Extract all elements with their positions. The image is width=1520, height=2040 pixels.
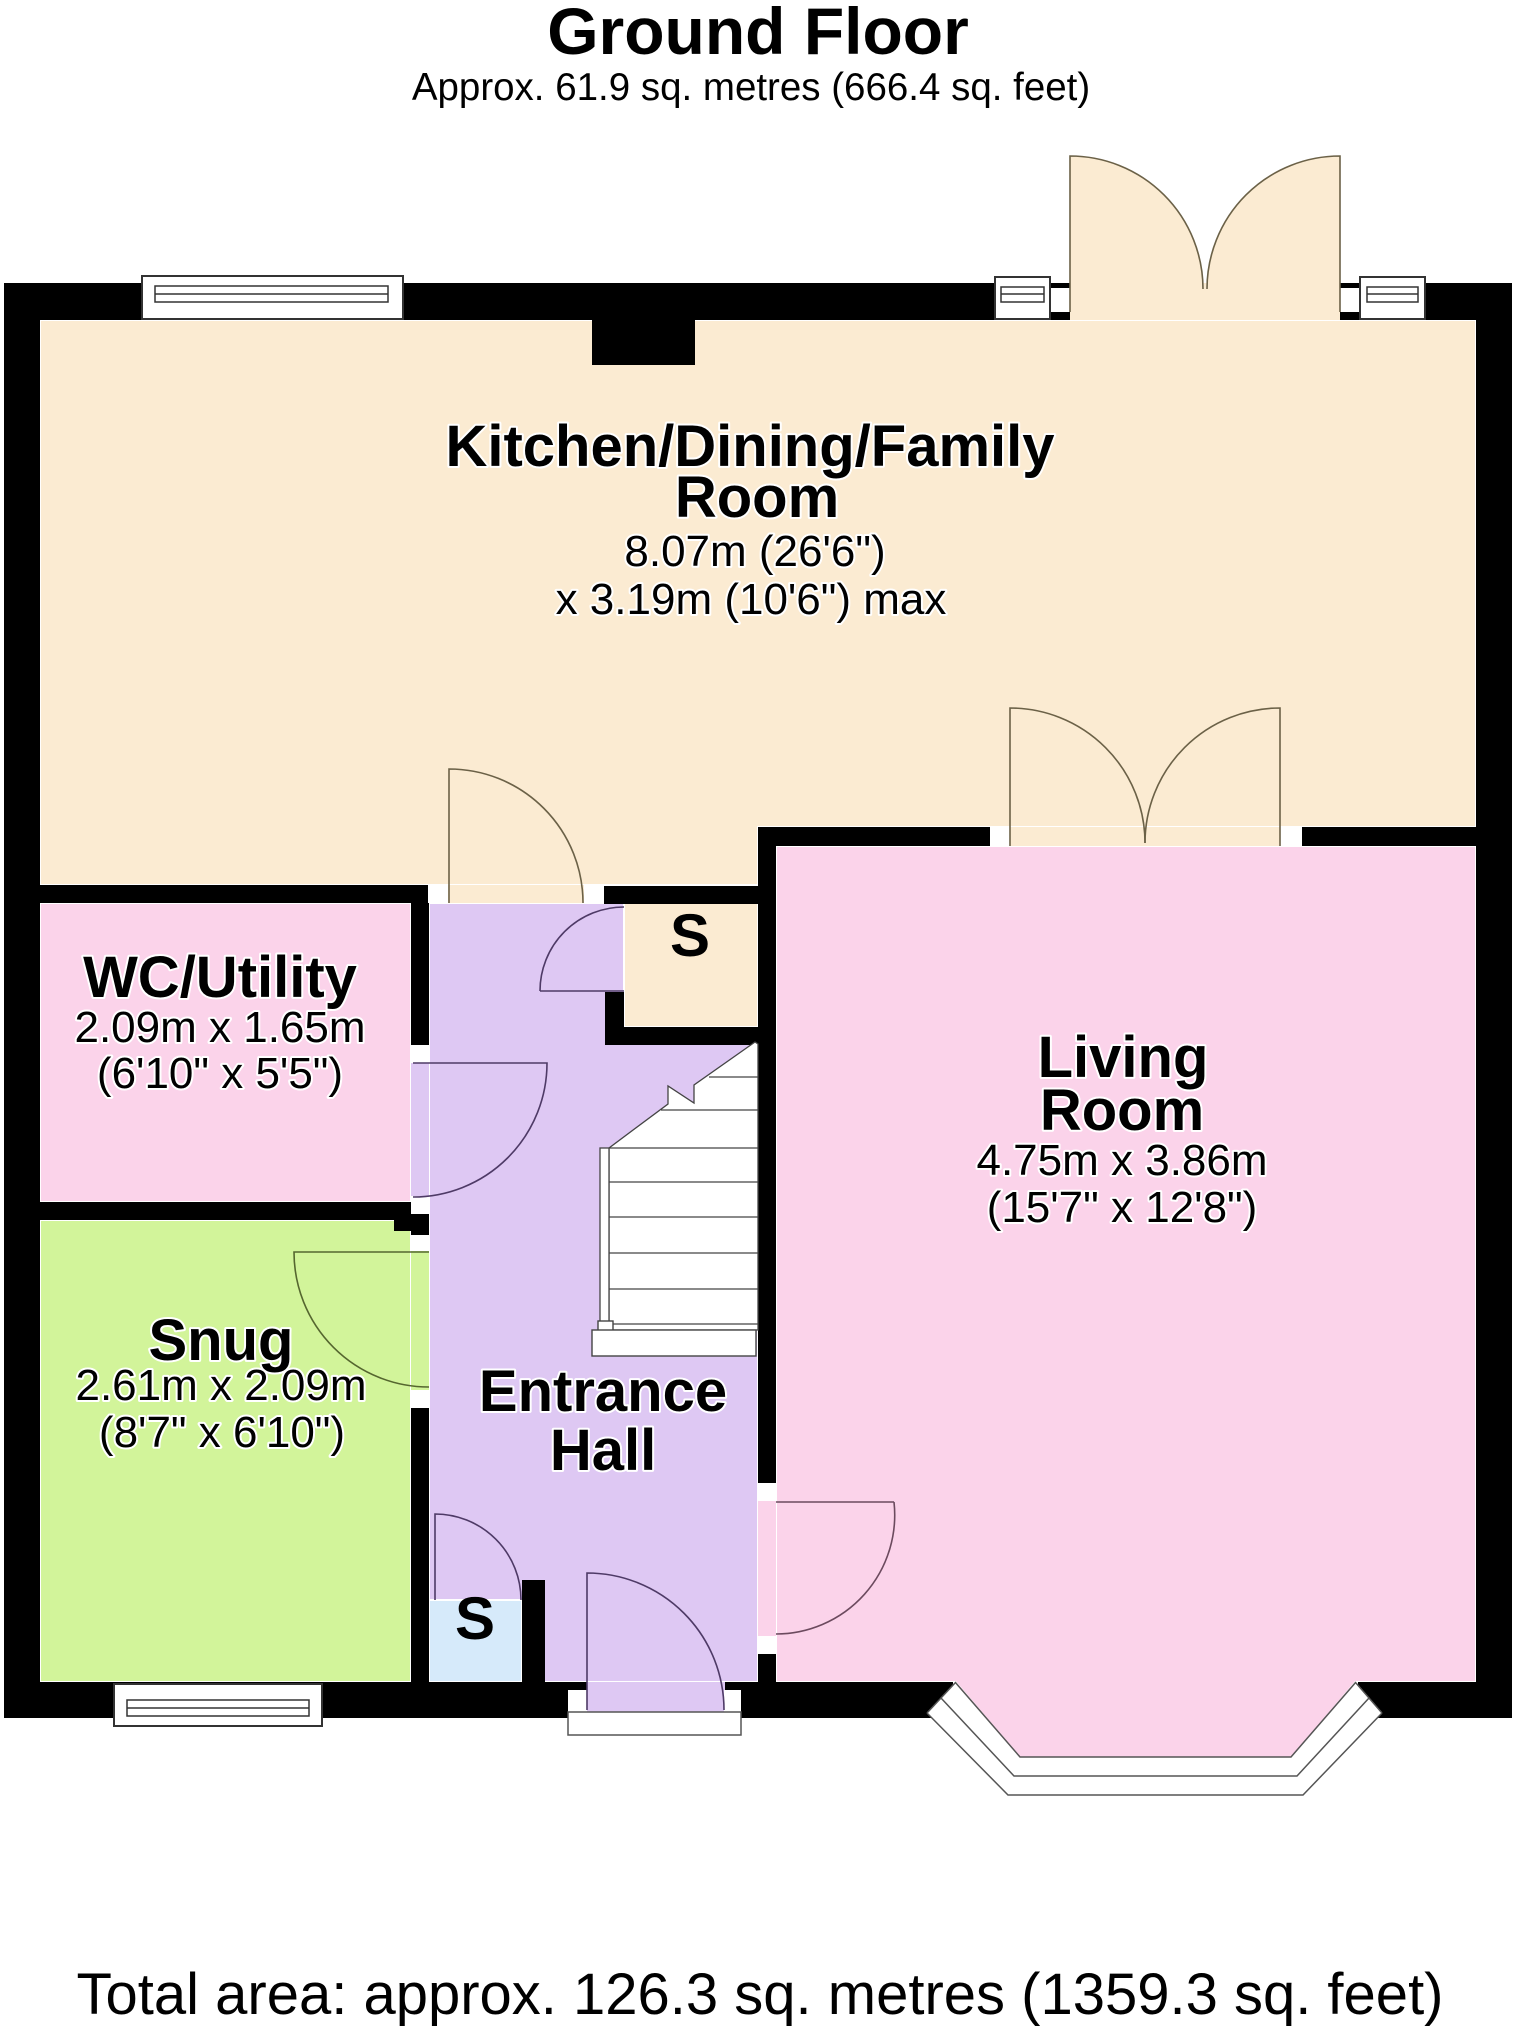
svg-text:Room: Room <box>675 465 839 530</box>
svg-text:Room: Room <box>1040 1078 1204 1143</box>
svg-text:Entrance: Entrance <box>479 1359 727 1424</box>
svg-text:S: S <box>670 902 710 969</box>
svg-text:WC/Utility: WC/Utility <box>83 945 357 1010</box>
svg-text:Ground Floor: Ground Floor <box>547 0 969 68</box>
svg-text:Approx. 61.9 sq. metres (666.4: Approx. 61.9 sq. metres (666.4 sq. feet) <box>412 66 1090 109</box>
svg-text:Hall: Hall <box>550 1418 656 1483</box>
svg-text:4.75m x 3.86m: 4.75m x 3.86m <box>976 1136 1267 1185</box>
svg-text:2.61m x 2.09m: 2.61m x 2.09m <box>75 1361 366 1410</box>
svg-text:(15'7" x 12'8"): (15'7" x 12'8") <box>987 1183 1258 1232</box>
svg-text:Total area: approx. 126.3 sq.: Total area: approx. 126.3 sq. metres (13… <box>77 1962 1444 2027</box>
svg-text:S: S <box>455 1585 495 1652</box>
svg-text:8.07m (26'6"): 8.07m (26'6") <box>624 527 885 576</box>
svg-text:(8'7" x 6'10"): (8'7" x 6'10") <box>99 1408 345 1457</box>
svg-text:2.09m x 1.65m: 2.09m x 1.65m <box>74 1003 365 1052</box>
svg-text:(6'10" x 5'5"): (6'10" x 5'5") <box>97 1049 343 1098</box>
svg-text:x 3.19m (10'6") max: x 3.19m (10'6") max <box>556 575 947 624</box>
